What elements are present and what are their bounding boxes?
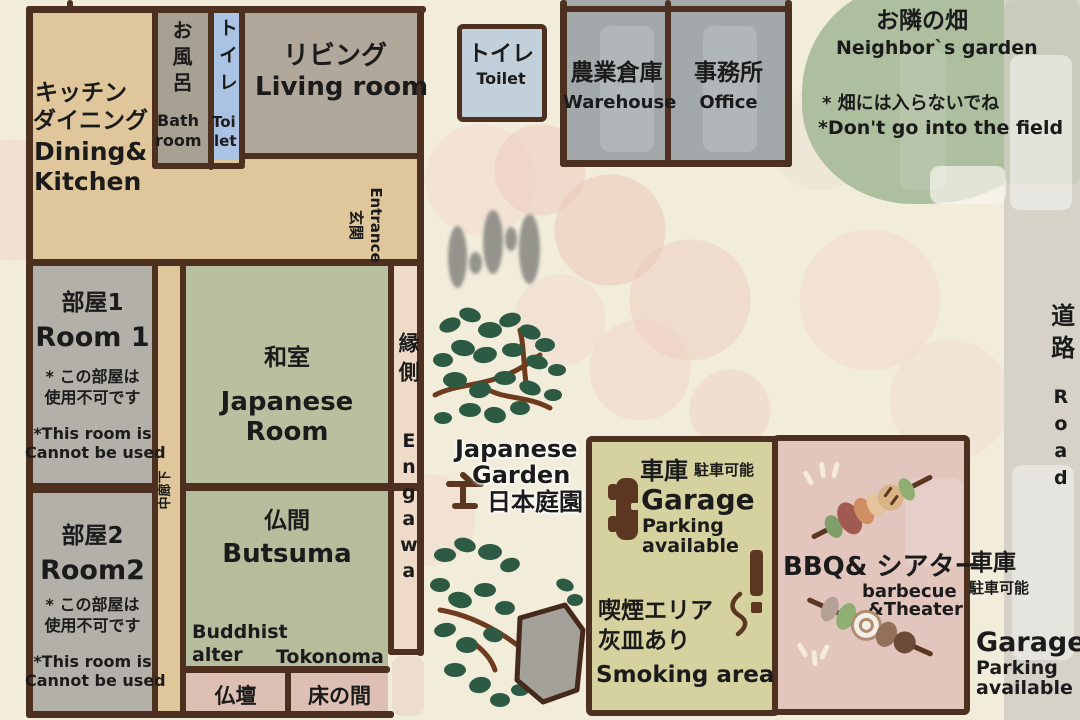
japanese-room-label-en1: Japanese (186, 388, 388, 418)
neighbor-garden-label-jp: お隣の畑 (876, 8, 968, 34)
toilet-label-en2: let (214, 133, 237, 150)
kitchen-label-en2: Kitchen (34, 168, 141, 197)
bathroom-label-en1: Bath (157, 112, 199, 130)
stepping-stone (519, 214, 540, 284)
cigarette-icon (724, 546, 774, 638)
entrance-label-en: Entrance (366, 183, 386, 267)
entrance-label: Entrance 玄関 (342, 183, 386, 267)
road-label-jp: 道路 (1046, 303, 1074, 367)
kitchen-label-jp1: キッチン (35, 80, 127, 106)
wall-segment (239, 153, 424, 159)
rock-icon (517, 605, 583, 702)
wall-segment (26, 6, 426, 13)
room1-note-jp2: 使用不可です (25, 389, 160, 407)
buddhist-alter-label-1: Buddhist (192, 622, 288, 644)
engawa-label-jp: 縁側 (396, 332, 420, 390)
stepping-stone (469, 252, 482, 274)
room1-label-jp: 部屋1 (30, 290, 155, 316)
wall-segment (67, 0, 73, 10)
toilet-label-jp: トイレ (215, 18, 237, 99)
garage-label-jp: 車庫 (640, 458, 688, 486)
neighbor-garden-warning-en: *Don't go into the field (818, 118, 1063, 140)
japanese-room-label-jp: 和室 (186, 345, 388, 371)
kitchen-label-en1: Dining& (34, 138, 147, 167)
japanese-garden-label-jp: 日本庭園 (487, 489, 583, 517)
outside-toilet-label-jp: トイレ (457, 42, 545, 67)
outside-toilet-label-en: Toilet (457, 70, 545, 88)
wall-segment (388, 259, 394, 655)
butsuma-label-jp: 仏間 (186, 508, 388, 534)
japanese-garden-label-en2: Garden (472, 462, 570, 490)
living-label-en: Living room (255, 73, 428, 103)
road-label-en: Road (1049, 386, 1071, 494)
room2-note-jp2: 使用不可です (25, 617, 160, 635)
office-label-en: Office (671, 93, 786, 114)
stepping-stone (505, 227, 517, 251)
living-label-jp: リビング (283, 42, 387, 72)
room2-label-jp: 部屋2 (30, 523, 155, 549)
wall-segment (560, 160, 792, 167)
bathroom-label-en2: room (155, 132, 202, 150)
room2-note-jp1: * この部屋は (25, 596, 160, 614)
smoking-label-en: Smoking area (596, 662, 774, 688)
room2-note-en2: Cannot be used (25, 672, 160, 690)
property-map: キッチン ダイニング Dining& Kitchen お風呂 Bath room… (0, 0, 1080, 720)
neighbor-garden-warning-jp: * 畑には入らないでね (822, 94, 999, 115)
butsuma-label-en: Butsuma (186, 540, 388, 570)
wall-segment (152, 163, 245, 169)
toilet-label-en1: Toi (212, 114, 236, 131)
japanese-room-floor (186, 266, 388, 483)
neighbor-garden-patch2 (930, 166, 1006, 204)
tokonoma-label-en: Tokonoma (276, 647, 384, 669)
engawa-end-patch (392, 656, 424, 716)
wall-segment (560, 0, 567, 167)
room1-note-en1: *This room is (25, 425, 160, 443)
wall-segment (26, 483, 158, 493)
buddhist-alter-label-2: alter (192, 645, 243, 667)
tokonoma-room-label: 床の間 (291, 684, 388, 708)
butsudan-label: 仏壇 (186, 684, 285, 708)
neighbor-garden-label-en: Neighbor`s garden (836, 38, 1038, 60)
bathroom-label-jp: お風呂 (169, 20, 192, 98)
warehouse-label-jp: 農業倉庫 (567, 60, 666, 86)
garage2-label-en: Garage (976, 627, 1080, 658)
wall-segment (785, 0, 792, 167)
skewer-icon (800, 572, 940, 682)
garage-parking-jp: 駐車可能 (694, 462, 754, 479)
stepping-stone (448, 226, 467, 288)
smoking-label-jp2: 灰皿あり (598, 628, 690, 654)
wall-segment (26, 711, 394, 718)
office-label-jp: 事務所 (671, 60, 786, 86)
room1-note-jp1: * この部屋は (25, 368, 160, 386)
smoking-label-jp1: 喫煙エリア (598, 598, 713, 624)
garage2-parking-en2: available (976, 678, 1073, 700)
japanese-room-label-en2: Room (186, 418, 388, 448)
room2-note-en1: *This room is (25, 653, 160, 671)
garage2-parking-jp: 駐車可能 (969, 580, 1029, 597)
warehouse-panel (600, 26, 654, 152)
room1-label-en: Room 1 (30, 322, 155, 353)
warehouse-label-en: Warehouse (563, 93, 670, 114)
office-panel (703, 26, 757, 152)
wall-segment (560, 6, 792, 12)
japanese-garden-label-en1: Japanese (455, 436, 577, 464)
wall-segment (239, 6, 245, 166)
garage-label-en: Garage (641, 484, 755, 516)
entrance-label-jp: 玄関 (346, 183, 366, 267)
room2-label-en: Room2 (30, 555, 155, 586)
wall-segment (417, 6, 424, 264)
engawa-label-en: Engawa (397, 430, 419, 586)
room1-note-en2: Cannot be used (25, 444, 160, 462)
garage2-label-jp: 車庫 (970, 550, 1016, 576)
stepping-stone (483, 210, 503, 274)
kitchen-label-jp2: ダイニング (33, 108, 148, 134)
